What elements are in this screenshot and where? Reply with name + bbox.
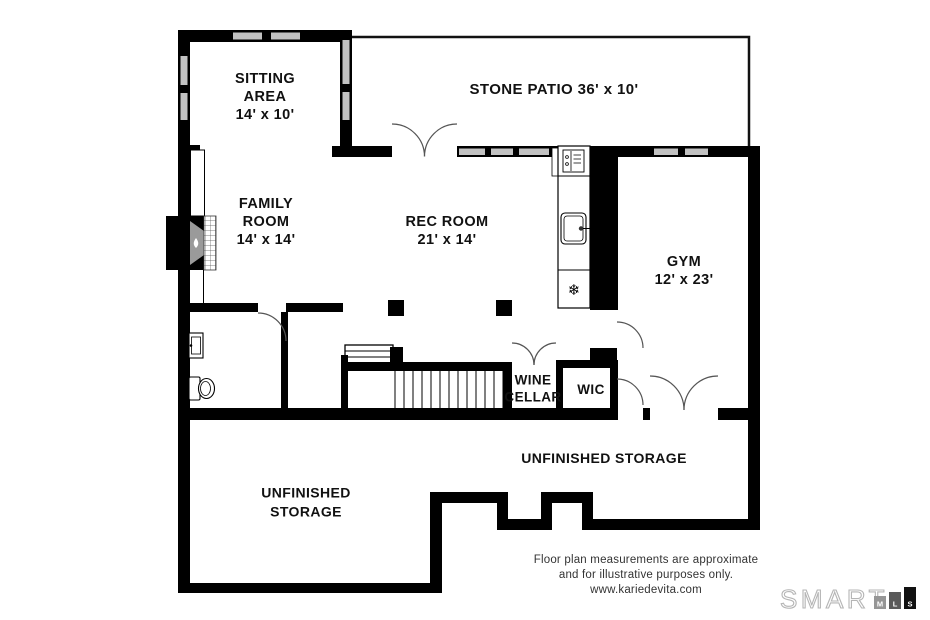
room-label-stone-patio: STONE PATIO 36' x 10' [470, 81, 639, 99]
logo-bar-s: S [904, 587, 916, 609]
logo-brand-text: SMART [780, 584, 888, 614]
bathroom-fixtures [189, 333, 215, 400]
staircase [345, 345, 503, 408]
fireplace-icon [166, 150, 216, 303]
room-label-unfinished-storage-left: UNFINISHED STORAGE [261, 484, 351, 521]
room-label-wine-cellar: WINE CELLAR [504, 373, 561, 406]
wine-cellar-door-icon [534, 343, 556, 365]
svg-text:S: S [907, 600, 912, 609]
room-label-family-room: FAMILY ROOM 14' x 14' [237, 195, 296, 249]
svg-text:L: L [893, 600, 898, 609]
room-label-unfinished-storage-right: UNFINISHED STORAGE [521, 450, 687, 467]
french-door-icon [392, 124, 425, 157]
support-posts [388, 300, 512, 316]
disclaimer-line-2: and for illustrative purposes only. [534, 568, 759, 583]
kitchenette: ❄ [552, 146, 590, 308]
beverage-fridge-icon [563, 150, 584, 172]
toilet-icon [189, 377, 215, 400]
website-link: www.kariedevita.com [534, 584, 759, 599]
gym-double-door-icon [650, 376, 684, 410]
room-label-rec-room: REC ROOM 21' x 14' [406, 213, 489, 249]
smart-mls-logo: SMART M L S [778, 576, 928, 618]
floor-plan-page: ❄ SITTING AREA 14' x 10' STONE PATIO 36'… [0, 0, 930, 620]
room-label-sitting-area: SITTING AREA 14' x 10' [235, 70, 295, 124]
wic-door-icon [617, 379, 643, 405]
svg-text:M: M [877, 600, 883, 609]
room-label-gym: GYM 12' x 23' [655, 253, 714, 289]
french-door-icon [425, 124, 458, 157]
footer-disclaimer: Floor plan measurements are approximate … [534, 553, 759, 599]
floor-plan-drawing: ❄ [0, 0, 930, 620]
logo-bar-l: L [889, 592, 901, 609]
disclaimer-line-1: Floor plan measurements are approximate [534, 553, 759, 568]
room-label-wic: WIC [577, 382, 604, 399]
wine-cellar-door-icon [512, 343, 534, 365]
gym-double-door-icon [684, 376, 718, 410]
logo-bar-m: M [874, 596, 886, 609]
bar-sink-icon [561, 213, 590, 244]
snowflake-icon: ❄ [568, 281, 581, 299]
gym-side-door-icon [617, 322, 643, 348]
sink-icon [189, 333, 203, 358]
